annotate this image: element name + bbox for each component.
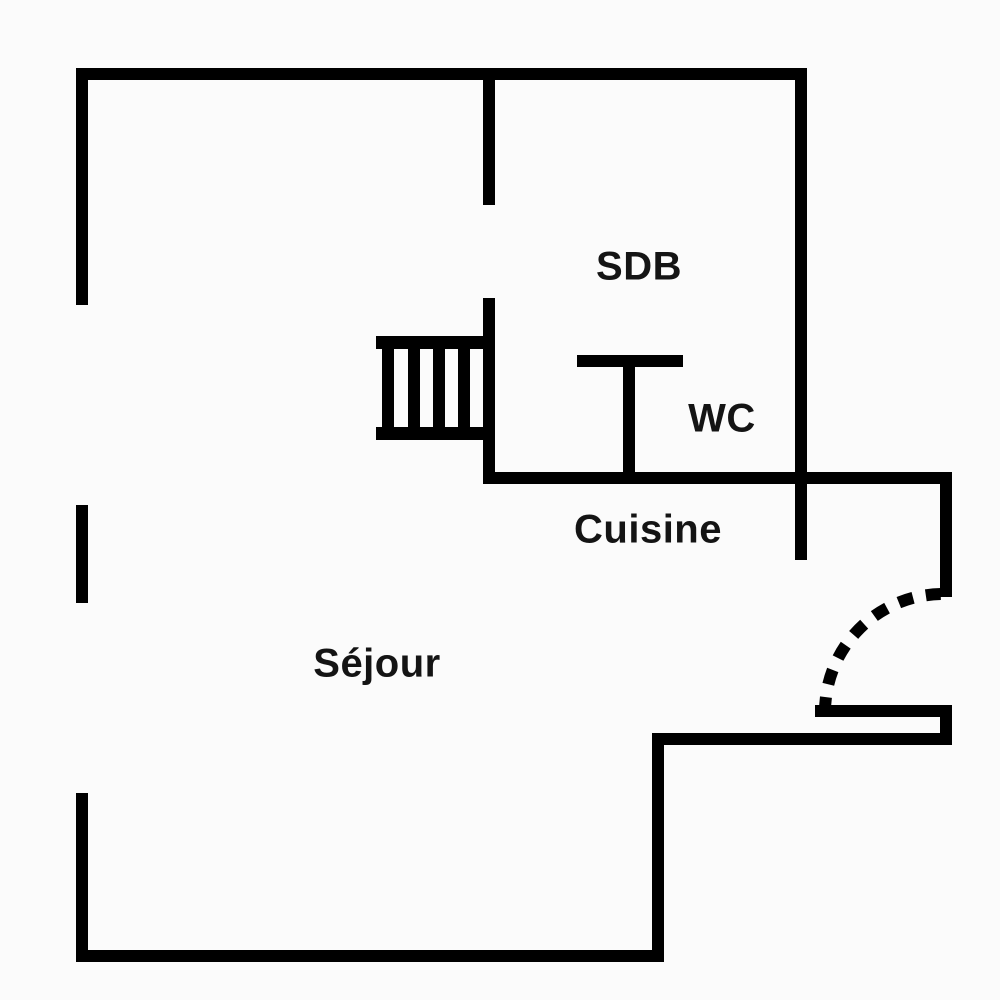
- wall-bottom-exterior: [76, 950, 663, 962]
- wall-left-lower-segment: [76, 793, 88, 962]
- wall-left-middle-segment: [76, 505, 88, 603]
- wall-wc-divider-stem: [623, 355, 635, 472]
- wall-sejour-step-vertical: [652, 733, 664, 962]
- room-label-cuisine: Cuisine: [574, 508, 722, 553]
- stair-rail-top: [376, 336, 493, 349]
- stair-step: [408, 349, 420, 427]
- stair-rail-bottom: [376, 427, 493, 440]
- stair-step: [433, 349, 445, 427]
- wall-top-exterior: [76, 68, 807, 80]
- wall-stairwell-lower-segment: [483, 298, 495, 472]
- room-label-sdb: SDB: [596, 245, 682, 290]
- wall-stairwell-upper-segment: [483, 80, 495, 205]
- room-label-sejour: Séjour: [313, 642, 440, 687]
- stair-step: [458, 349, 470, 427]
- wall-cuisine-top: [483, 472, 952, 484]
- wall-sdb-right: [795, 68, 807, 560]
- wall-left-upper-segment: [76, 68, 88, 305]
- room-label-wc: WC: [688, 397, 756, 442]
- stair-step: [382, 349, 394, 427]
- door-swing-arc-icon: [805, 575, 965, 735]
- floor-plan: SDB WC Cuisine Séjour: [0, 0, 1000, 1000]
